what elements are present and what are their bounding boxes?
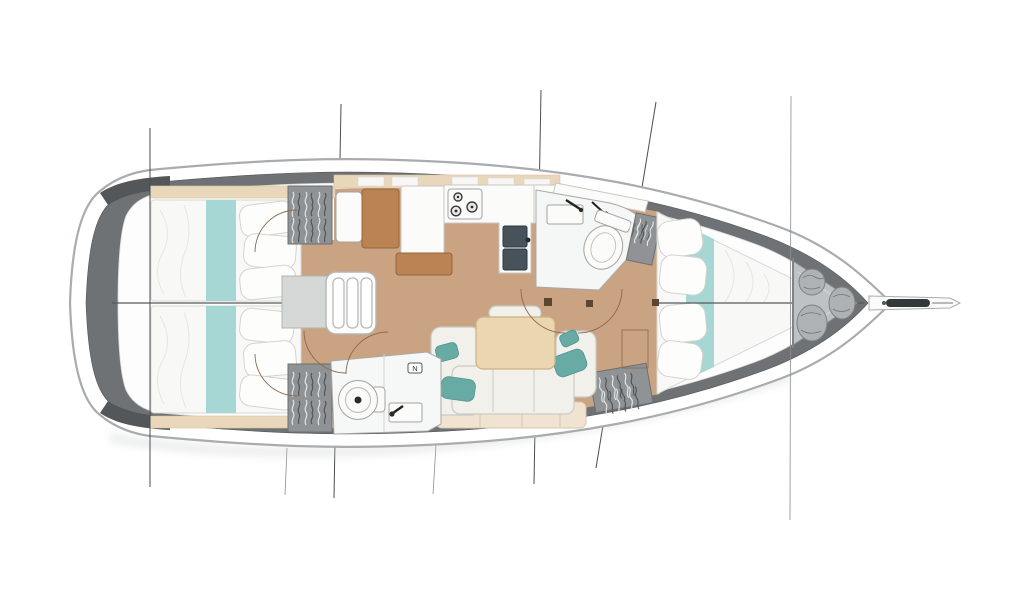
nav-desk: [396, 253, 452, 275]
sink-basin-icon: [503, 226, 527, 247]
yacht-deck-plan: N: [0, 0, 1024, 600]
step: [361, 278, 372, 328]
bow-fitting: [882, 301, 886, 305]
door-hinge: [586, 300, 593, 307]
step: [333, 278, 344, 328]
door-hinge: [652, 299, 659, 306]
pillow: [658, 302, 708, 345]
chart-table: [401, 186, 444, 254]
pillow: [238, 200, 295, 238]
locker-slot: [358, 177, 384, 186]
toilet-drain: [355, 397, 362, 404]
landing-platform: [282, 276, 328, 328]
step: [347, 278, 358, 328]
pillow: [656, 217, 705, 259]
sail-bag-icon: [797, 305, 827, 341]
faucet-knob: [389, 411, 394, 416]
burner-center: [457, 196, 459, 198]
companionway: [282, 272, 376, 334]
head-tag-label: N: [412, 364, 417, 373]
pillow: [656, 339, 705, 381]
accent-pillow: [440, 376, 477, 403]
yacht-deck-plan-page: N: [0, 0, 1024, 600]
pillow: [658, 254, 708, 297]
faucet-icon: [526, 238, 531, 243]
burner-center: [455, 210, 458, 213]
nav-seat-back: [362, 189, 399, 248]
bed-runner: [206, 306, 236, 413]
hanging-locker-starboard: [288, 364, 332, 432]
sail-bag-icon: [829, 287, 855, 319]
faucet-knob: [579, 208, 583, 212]
sail-bag-icon: [799, 269, 825, 295]
burner-center: [471, 206, 474, 209]
forward-section-line: [790, 96, 791, 520]
sink-basin-icon: [503, 249, 527, 270]
anchor-roller-icon: [886, 299, 930, 307]
door-hinge: [544, 298, 552, 306]
hanging-locker-port: [288, 186, 332, 244]
nav-seat-cushion: [336, 192, 362, 242]
bed-runner: [206, 200, 236, 301]
head-tag: N: [408, 363, 422, 373]
locker-slot: [392, 177, 418, 186]
saloon-table: [476, 317, 555, 369]
bowsprit: [869, 296, 960, 310]
